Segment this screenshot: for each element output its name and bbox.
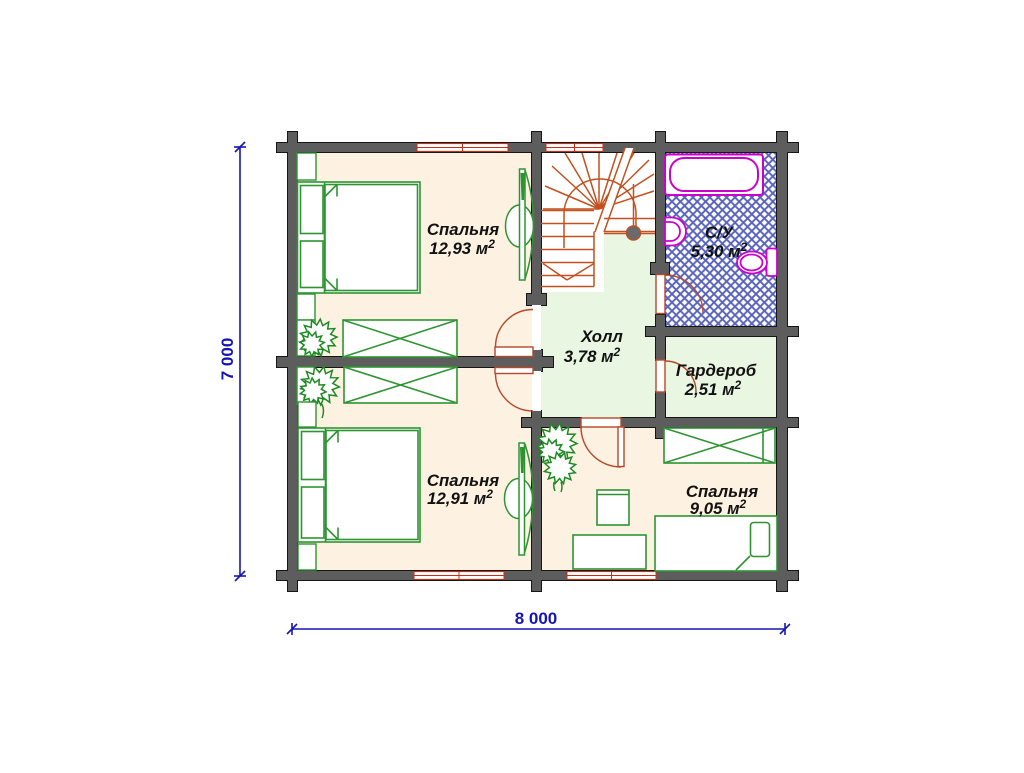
svg-text:С/У: С/У	[705, 223, 735, 242]
svg-text:7 000: 7 000	[218, 338, 237, 381]
svg-text:8 000: 8 000	[515, 609, 558, 628]
svg-text:Холл: Холл	[580, 327, 623, 346]
svg-text:2,51 м2: 2,51 м2	[684, 378, 742, 399]
svg-text:3,78 м2: 3,78 м2	[564, 345, 621, 366]
svg-text:5,30 м2: 5,30 м2	[691, 240, 748, 261]
svg-text:Гардероб: Гардероб	[676, 361, 757, 380]
svg-text:12,91 м2: 12,91 м2	[427, 487, 493, 508]
svg-text:9,05 м2: 9,05 м2	[690, 497, 747, 518]
svg-text:12,93 м2: 12,93 м2	[429, 237, 495, 258]
